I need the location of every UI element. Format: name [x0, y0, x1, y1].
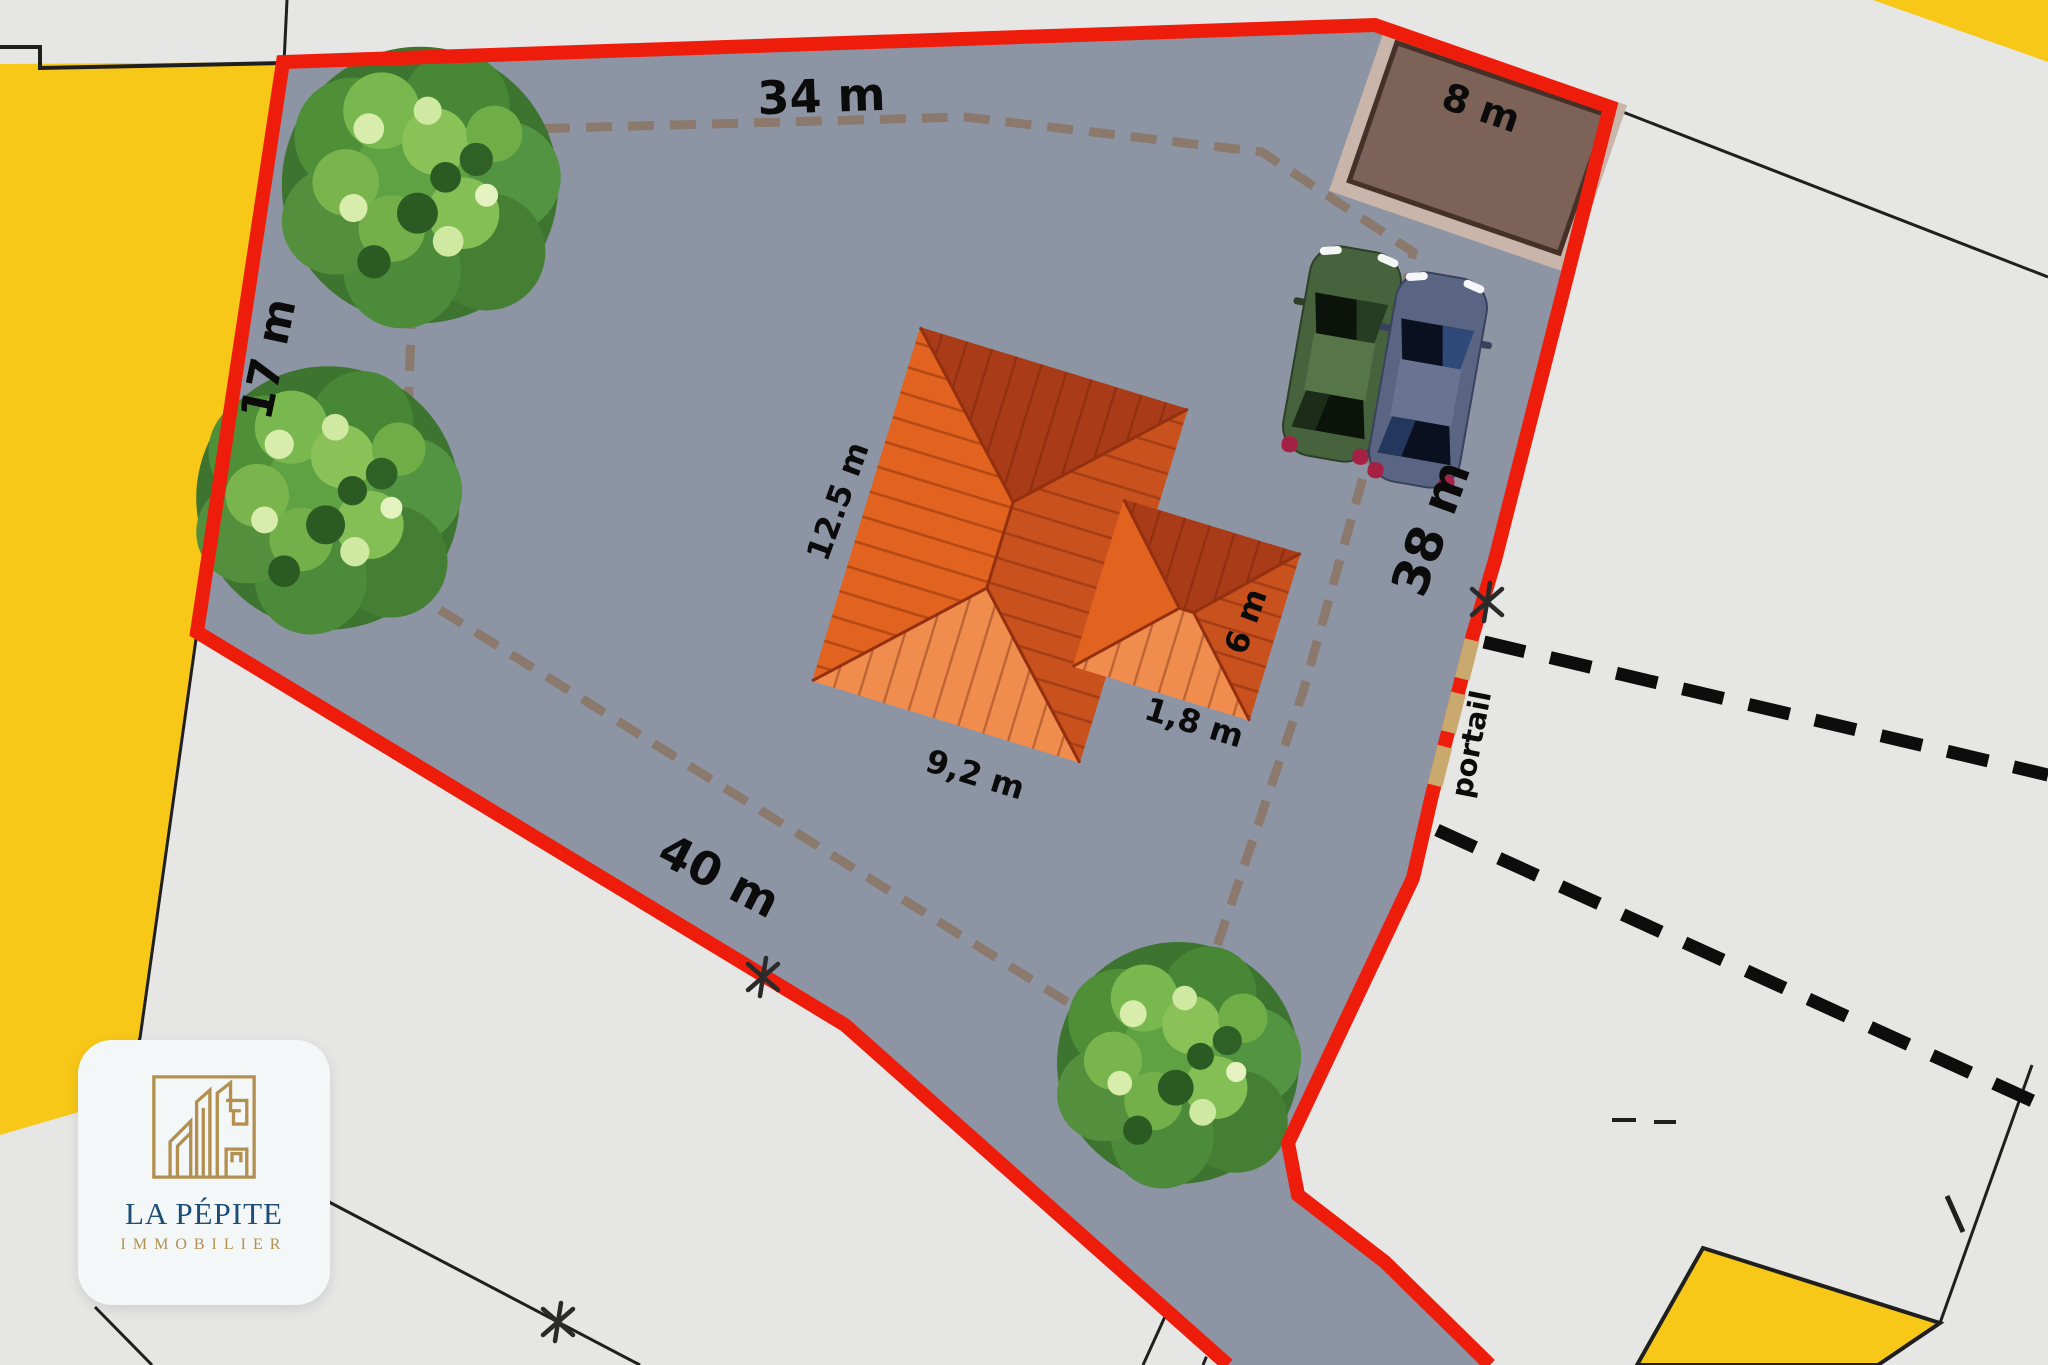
agency-logo-card: LA PÉPITE IMMOBILIER	[78, 1040, 330, 1305]
parcel-line	[95, 1307, 152, 1365]
parcel-tick	[1947, 1196, 1963, 1232]
survey-mark-icon	[543, 1303, 573, 1341]
agency-name: LA PÉPITE	[125, 1196, 283, 1232]
access-line-lower	[1437, 830, 2048, 1108]
agency-logo-buildings-icon	[145, 1066, 263, 1188]
parcel-line	[1610, 107, 2048, 277]
access-line-upper	[1484, 642, 2048, 775]
agency-subtitle: IMMOBILIER	[121, 1236, 288, 1254]
parcel-line	[310, 1192, 640, 1365]
access-dashed-lines	[1437, 642, 2048, 1108]
parcel-yellow-top-right	[1873, 0, 2048, 62]
parcel-yellow-bottom-right	[1637, 1248, 1940, 1365]
site-plan-page: 8 m	[0, 0, 2048, 1365]
parcel-line	[284, 0, 287, 63]
parcel-line	[1940, 1065, 2032, 1323]
dimension-label-top: 34 m	[757, 67, 887, 125]
parcel-tick	[1612, 1120, 1676, 1122]
